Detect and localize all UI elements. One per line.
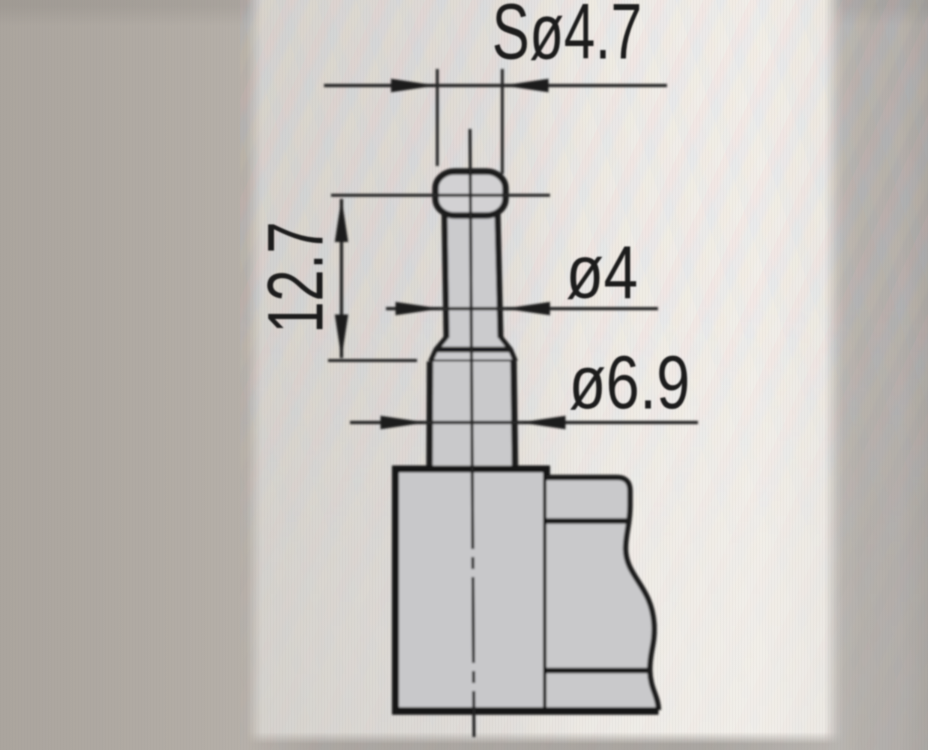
svg-text:Sø4.7: Sø4.7	[492, 0, 642, 76]
svg-text:ø4: ø4	[566, 230, 638, 314]
svg-text:ø6.9: ø6.9	[569, 341, 690, 425]
svg-text:12.7: 12.7	[251, 222, 340, 334]
